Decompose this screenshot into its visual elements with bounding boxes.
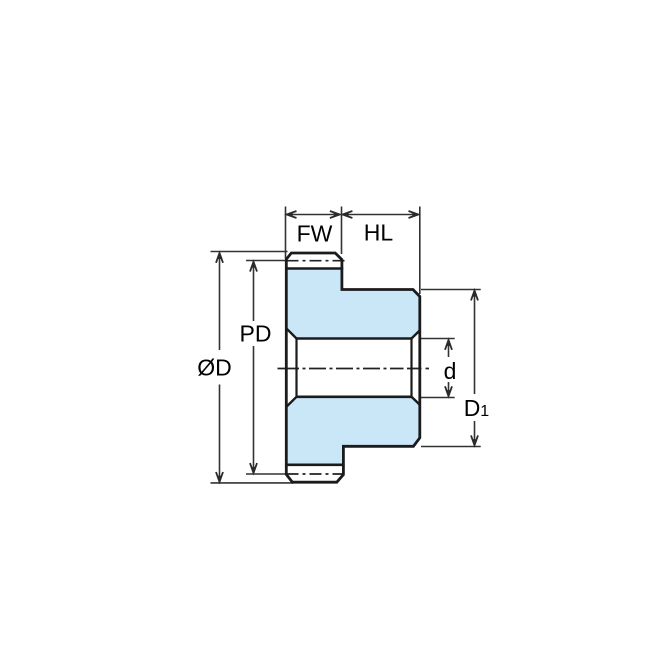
svg-text:d: d [444, 358, 457, 384]
svg-text:D: D [464, 395, 481, 421]
svg-text:HL: HL [364, 220, 394, 246]
svg-text:FW: FW [297, 221, 333, 247]
svg-text:1: 1 [480, 403, 489, 420]
svg-text:PD: PD [240, 321, 272, 347]
svg-text:ØD: ØD [197, 355, 232, 381]
